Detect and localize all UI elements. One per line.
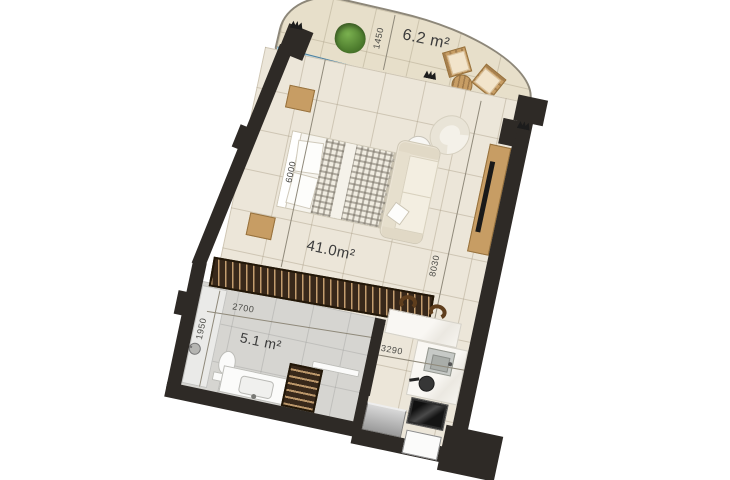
faucet-icon — [251, 394, 257, 400]
chair-cushion — [447, 51, 470, 75]
blanket-band — [330, 143, 357, 220]
apartment-floor-plan: 1450 6.2 m² 1950 2700 5.1 m² — [144, 0, 570, 480]
wall-corner-bottom-right — [437, 425, 503, 480]
floor-plan-canvas: 1450 6.2 m² 1950 2700 5.1 m² — [0, 0, 730, 480]
